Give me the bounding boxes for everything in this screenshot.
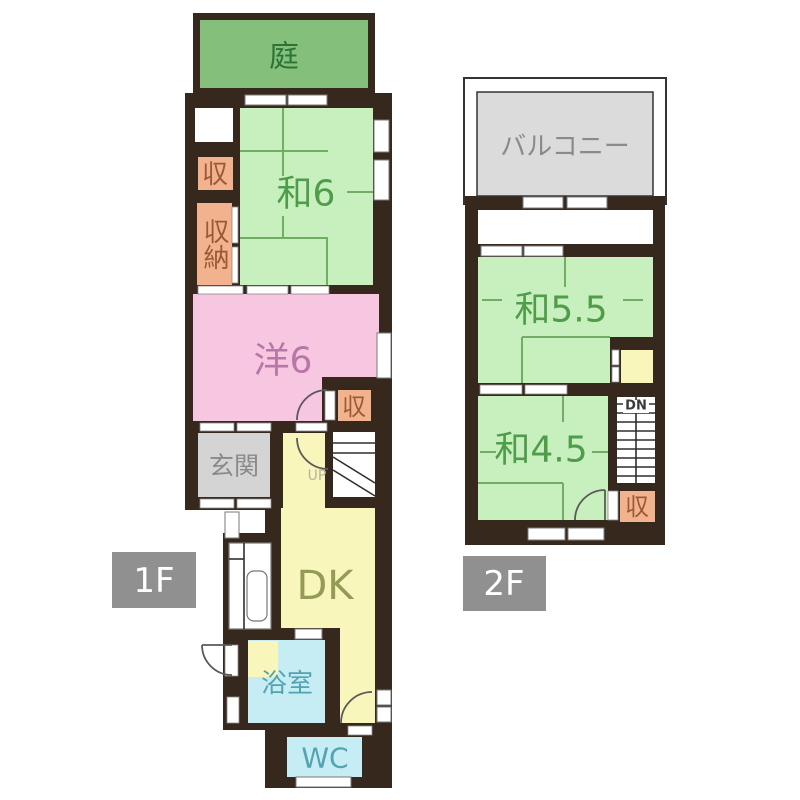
f1-entrance-door-bottom-2 xyxy=(237,499,271,508)
floor2-badge-label: 2F xyxy=(483,564,524,604)
entrance-label: 玄関 xyxy=(209,452,259,481)
toilet-label: WC xyxy=(301,742,348,775)
bathroom-label: 浴室 xyxy=(261,669,313,699)
f1-window-right-1 xyxy=(374,120,389,152)
closet-b-label: 収納 xyxy=(199,218,229,270)
f1-fusuma-1 xyxy=(247,286,288,294)
f1-bath-side-wall xyxy=(325,628,340,723)
f2-closet-door-1 xyxy=(612,350,619,365)
f1-window-right-5 xyxy=(377,707,391,722)
f1-back-door-opening xyxy=(225,645,238,676)
f1-window-bottom xyxy=(296,777,351,787)
f1-alcove xyxy=(195,108,233,142)
f2-balcony-window-1 xyxy=(523,197,563,208)
f1-stairs-up-well xyxy=(333,432,375,497)
f1-dk-door-opening xyxy=(296,423,327,431)
dk-label: DK xyxy=(296,563,355,609)
floor1-badge-label: 1F xyxy=(133,561,174,601)
f1-window-top-1 xyxy=(245,95,286,105)
f1-entrance-door-top-2 xyxy=(237,423,271,431)
stairs-down-label: DN xyxy=(625,399,647,414)
f2-washitsu55-room-lower xyxy=(478,337,610,383)
stairs-up-label: UP xyxy=(308,468,327,484)
f1-closet-b-door2 xyxy=(232,247,238,283)
f2-fusuma-2 xyxy=(525,385,567,394)
f2-corridor-window-1 xyxy=(481,246,522,256)
closet-a-label: 収 xyxy=(202,160,228,190)
floor1-plan: 庭 和6 収 収納 洋6 収 玄関 UP DK 浴室 WC 1F xyxy=(112,13,392,788)
closet-c-label: 収 xyxy=(342,393,366,421)
closet-d-label: 収 xyxy=(625,493,649,521)
f2-balcony-window-2 xyxy=(567,197,607,208)
washitsu45-label: 和4.5 xyxy=(494,430,587,471)
f1-window-right-4 xyxy=(377,690,391,705)
western6-label: 洋6 xyxy=(254,341,313,382)
f2-landing-area xyxy=(621,350,653,383)
kitchen-sink xyxy=(247,571,267,621)
f2-fusuma-1 xyxy=(480,385,522,394)
f1-fusuma-0 xyxy=(198,286,243,294)
garden-label: 庭 xyxy=(269,40,299,75)
balcony-label: バルコニー xyxy=(500,132,629,162)
f2-closet-door-2 xyxy=(612,367,619,382)
f2-closet-d-door xyxy=(608,491,618,520)
f1-entrance-door-top-1 xyxy=(200,423,234,431)
f1-window-top-2 xyxy=(288,95,327,105)
floorplan-canvas: 庭 和6 収 収納 洋6 収 玄関 UP DK 浴室 WC 1F xyxy=(0,0,800,800)
f1-window-left-1 xyxy=(225,512,239,538)
f1-closet-b-door xyxy=(232,207,238,243)
f1-entrance-door-bottom-1 xyxy=(200,499,234,508)
f1-window-right-2 xyxy=(374,160,389,200)
f1-fusuma-2 xyxy=(291,286,329,294)
f2-window-bottom-1 xyxy=(528,528,565,540)
f2-corridor-window-2 xyxy=(524,246,563,256)
f1-window-right-3 xyxy=(377,333,391,378)
f2-window-bottom-2 xyxy=(568,528,604,540)
washitsu55-label: 和5.5 xyxy=(514,290,607,331)
floorplan-page: 庭 和6 収 収納 洋6 収 玄関 UP DK 浴室 WC 1F xyxy=(0,0,800,800)
f1-wc-door-opening xyxy=(348,726,372,735)
floor2-plan: バルコニー 和5.5 和4.5 DN 収 2F xyxy=(463,78,666,611)
washitsu6-label: 和6 xyxy=(277,174,336,215)
f1-closet-c-door xyxy=(325,391,335,420)
f1-bath-side-opening xyxy=(227,697,239,723)
f1-bath-window xyxy=(295,629,322,639)
f2-corridor xyxy=(478,210,653,244)
